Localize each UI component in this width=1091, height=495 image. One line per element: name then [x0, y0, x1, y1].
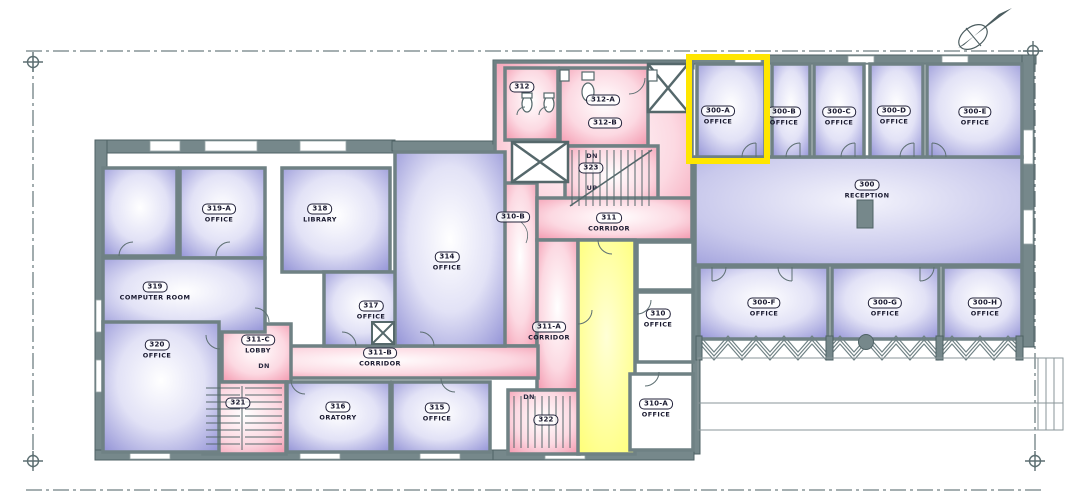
terrace-outline [698, 358, 1063, 430]
floor-plan-drawing [0, 0, 1091, 495]
shaft-icon [372, 322, 394, 344]
north-arrow-icon [954, 8, 1012, 54]
stair-down-label: DN [258, 362, 269, 370]
stair-down-label: DN [586, 152, 597, 160]
stair-down-label: DN [523, 393, 534, 401]
stair-up-label: UP [587, 184, 598, 192]
highlight-box [686, 54, 770, 164]
rooms-layer [103, 62, 1022, 454]
floor-plan: 319-AOFFICE 318LIBRARY 319COMPUTER ROOM … [0, 0, 1091, 495]
